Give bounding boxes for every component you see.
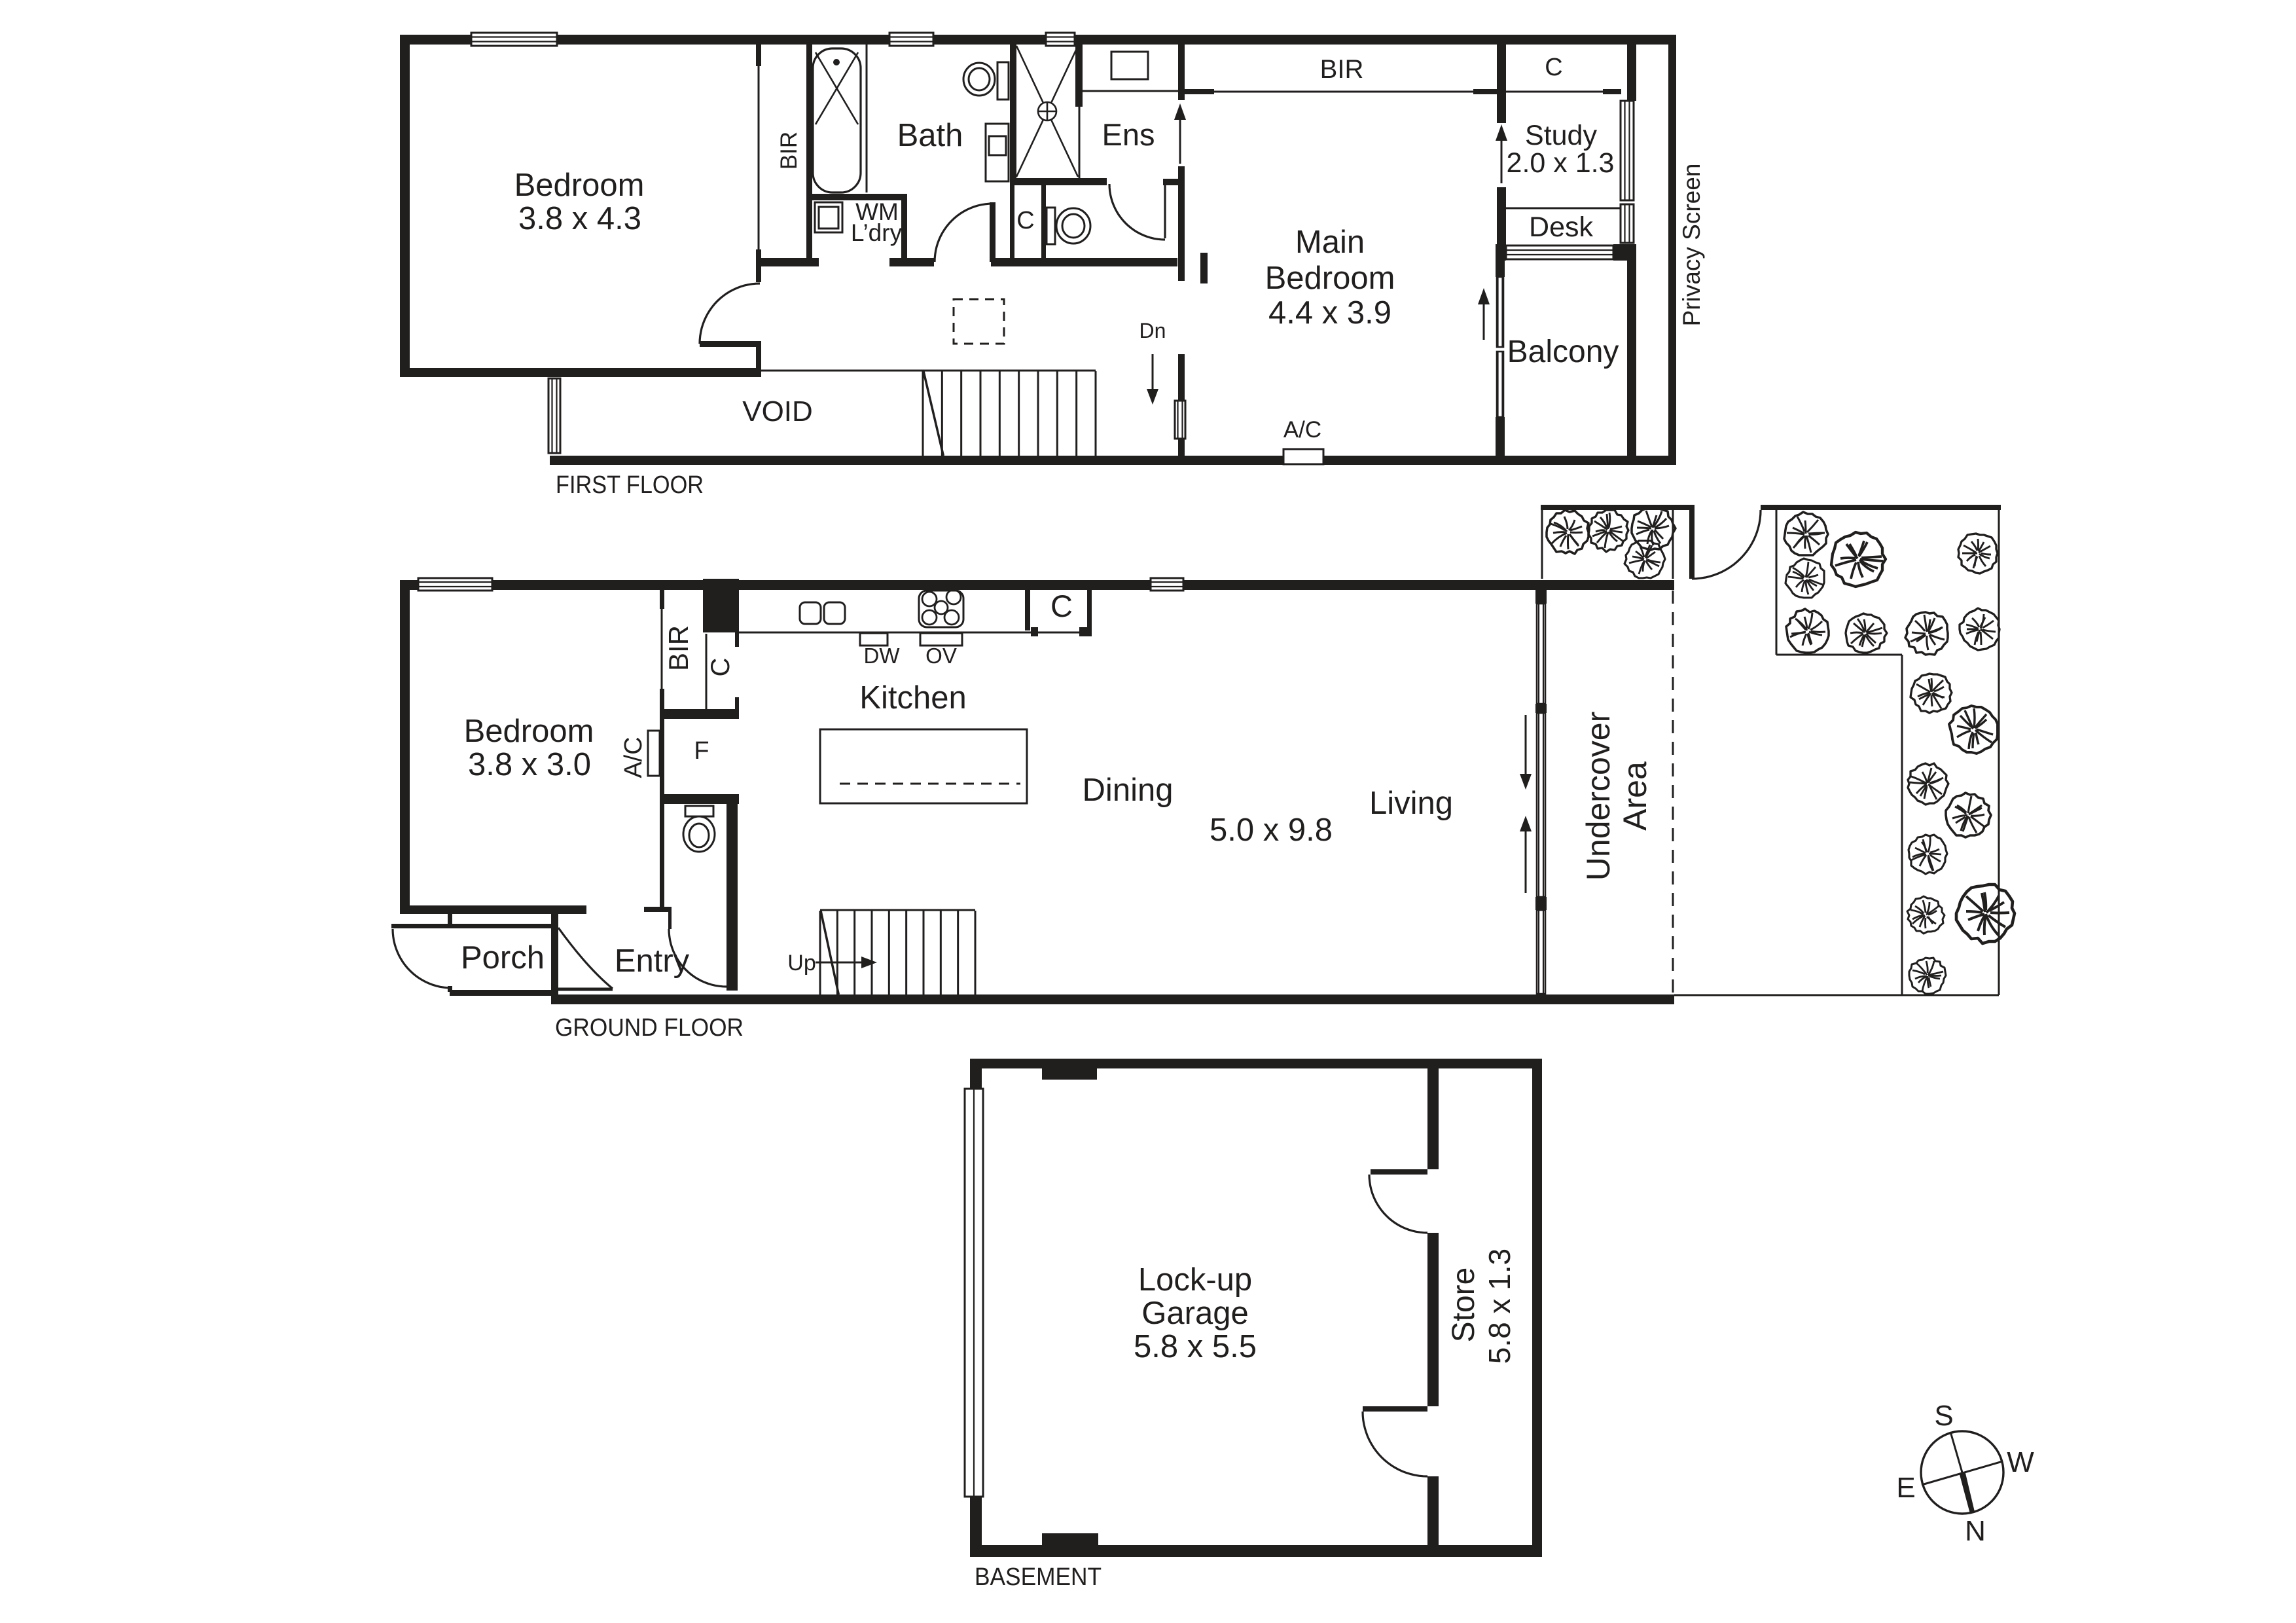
svg-text:FIRST FLOOR: FIRST FLOOR	[556, 471, 704, 499]
svg-text:Bath: Bath	[897, 118, 963, 153]
svg-text:5.8 x 5.5: 5.8 x 5.5	[1134, 1329, 1257, 1364]
svg-text:L’dry: L’dry	[851, 219, 903, 246]
svg-text:5.8 x 1.3: 5.8 x 1.3	[1482, 1249, 1516, 1364]
svg-text:C: C	[706, 658, 735, 677]
svg-text:Dining: Dining	[1083, 773, 1174, 808]
svg-text:4.4 x 3.9: 4.4 x 3.9	[1268, 295, 1391, 331]
svg-text:Lock-up: Lock-up	[1138, 1262, 1252, 1298]
svg-text:Kitchen: Kitchen	[859, 680, 966, 716]
svg-text:Entry: Entry	[615, 943, 690, 979]
svg-text:3.8 x 3.0: 3.8 x 3.0	[468, 747, 591, 782]
svg-text:C: C	[1545, 54, 1562, 81]
svg-text:3.8 x 4.3: 3.8 x 4.3	[518, 201, 641, 236]
svg-text:5.0 x 9.8: 5.0 x 9.8	[1210, 812, 1333, 848]
svg-text:Dn: Dn	[1139, 319, 1166, 342]
svg-text:2.0 x 1.3: 2.0 x 1.3	[1507, 147, 1615, 179]
svg-text:Bedroom: Bedroom	[464, 714, 594, 749]
svg-text:Porch: Porch	[461, 940, 545, 976]
svg-text:Up: Up	[787, 951, 816, 976]
svg-text:BIR: BIR	[663, 625, 694, 671]
svg-text:Desk: Desk	[1529, 211, 1593, 243]
svg-text:Undercover: Undercover	[1580, 712, 1617, 881]
svg-text:VOID: VOID	[742, 395, 813, 428]
svg-text:A/C: A/C	[1283, 417, 1321, 443]
svg-text:F: F	[694, 737, 709, 765]
svg-text:Privacy Screen: Privacy Screen	[1678, 164, 1705, 327]
svg-text:GROUND FLOOR: GROUND FLOOR	[555, 1014, 744, 1042]
svg-text:Balcony: Balcony	[1507, 335, 1619, 369]
svg-text:Bedroom: Bedroom	[1265, 261, 1395, 296]
svg-text:N: N	[1965, 1515, 1986, 1547]
svg-text:C: C	[1050, 589, 1073, 623]
svg-text:Main: Main	[1295, 225, 1365, 260]
svg-text:BIR: BIR	[1320, 55, 1364, 84]
svg-text:Store: Store	[1446, 1267, 1481, 1343]
svg-text:A/C: A/C	[620, 737, 647, 778]
svg-text:Living: Living	[1369, 786, 1453, 821]
svg-text:Garage: Garage	[1141, 1296, 1248, 1331]
svg-text:Study: Study	[1525, 120, 1597, 151]
svg-text:Area: Area	[1617, 761, 1653, 831]
svg-text:DW: DW	[864, 644, 901, 668]
svg-text:W: W	[2007, 1446, 2034, 1478]
svg-text:BIR: BIR	[776, 132, 802, 170]
svg-text:Bedroom: Bedroom	[514, 168, 645, 203]
svg-text:BASEMENT: BASEMENT	[975, 1563, 1102, 1591]
svg-text:C: C	[1016, 207, 1034, 234]
svg-text:Ens: Ens	[1102, 117, 1155, 152]
svg-text:OV: OV	[925, 644, 957, 668]
svg-text:S: S	[1934, 1400, 1953, 1432]
svg-text:E: E	[1896, 1472, 1915, 1504]
